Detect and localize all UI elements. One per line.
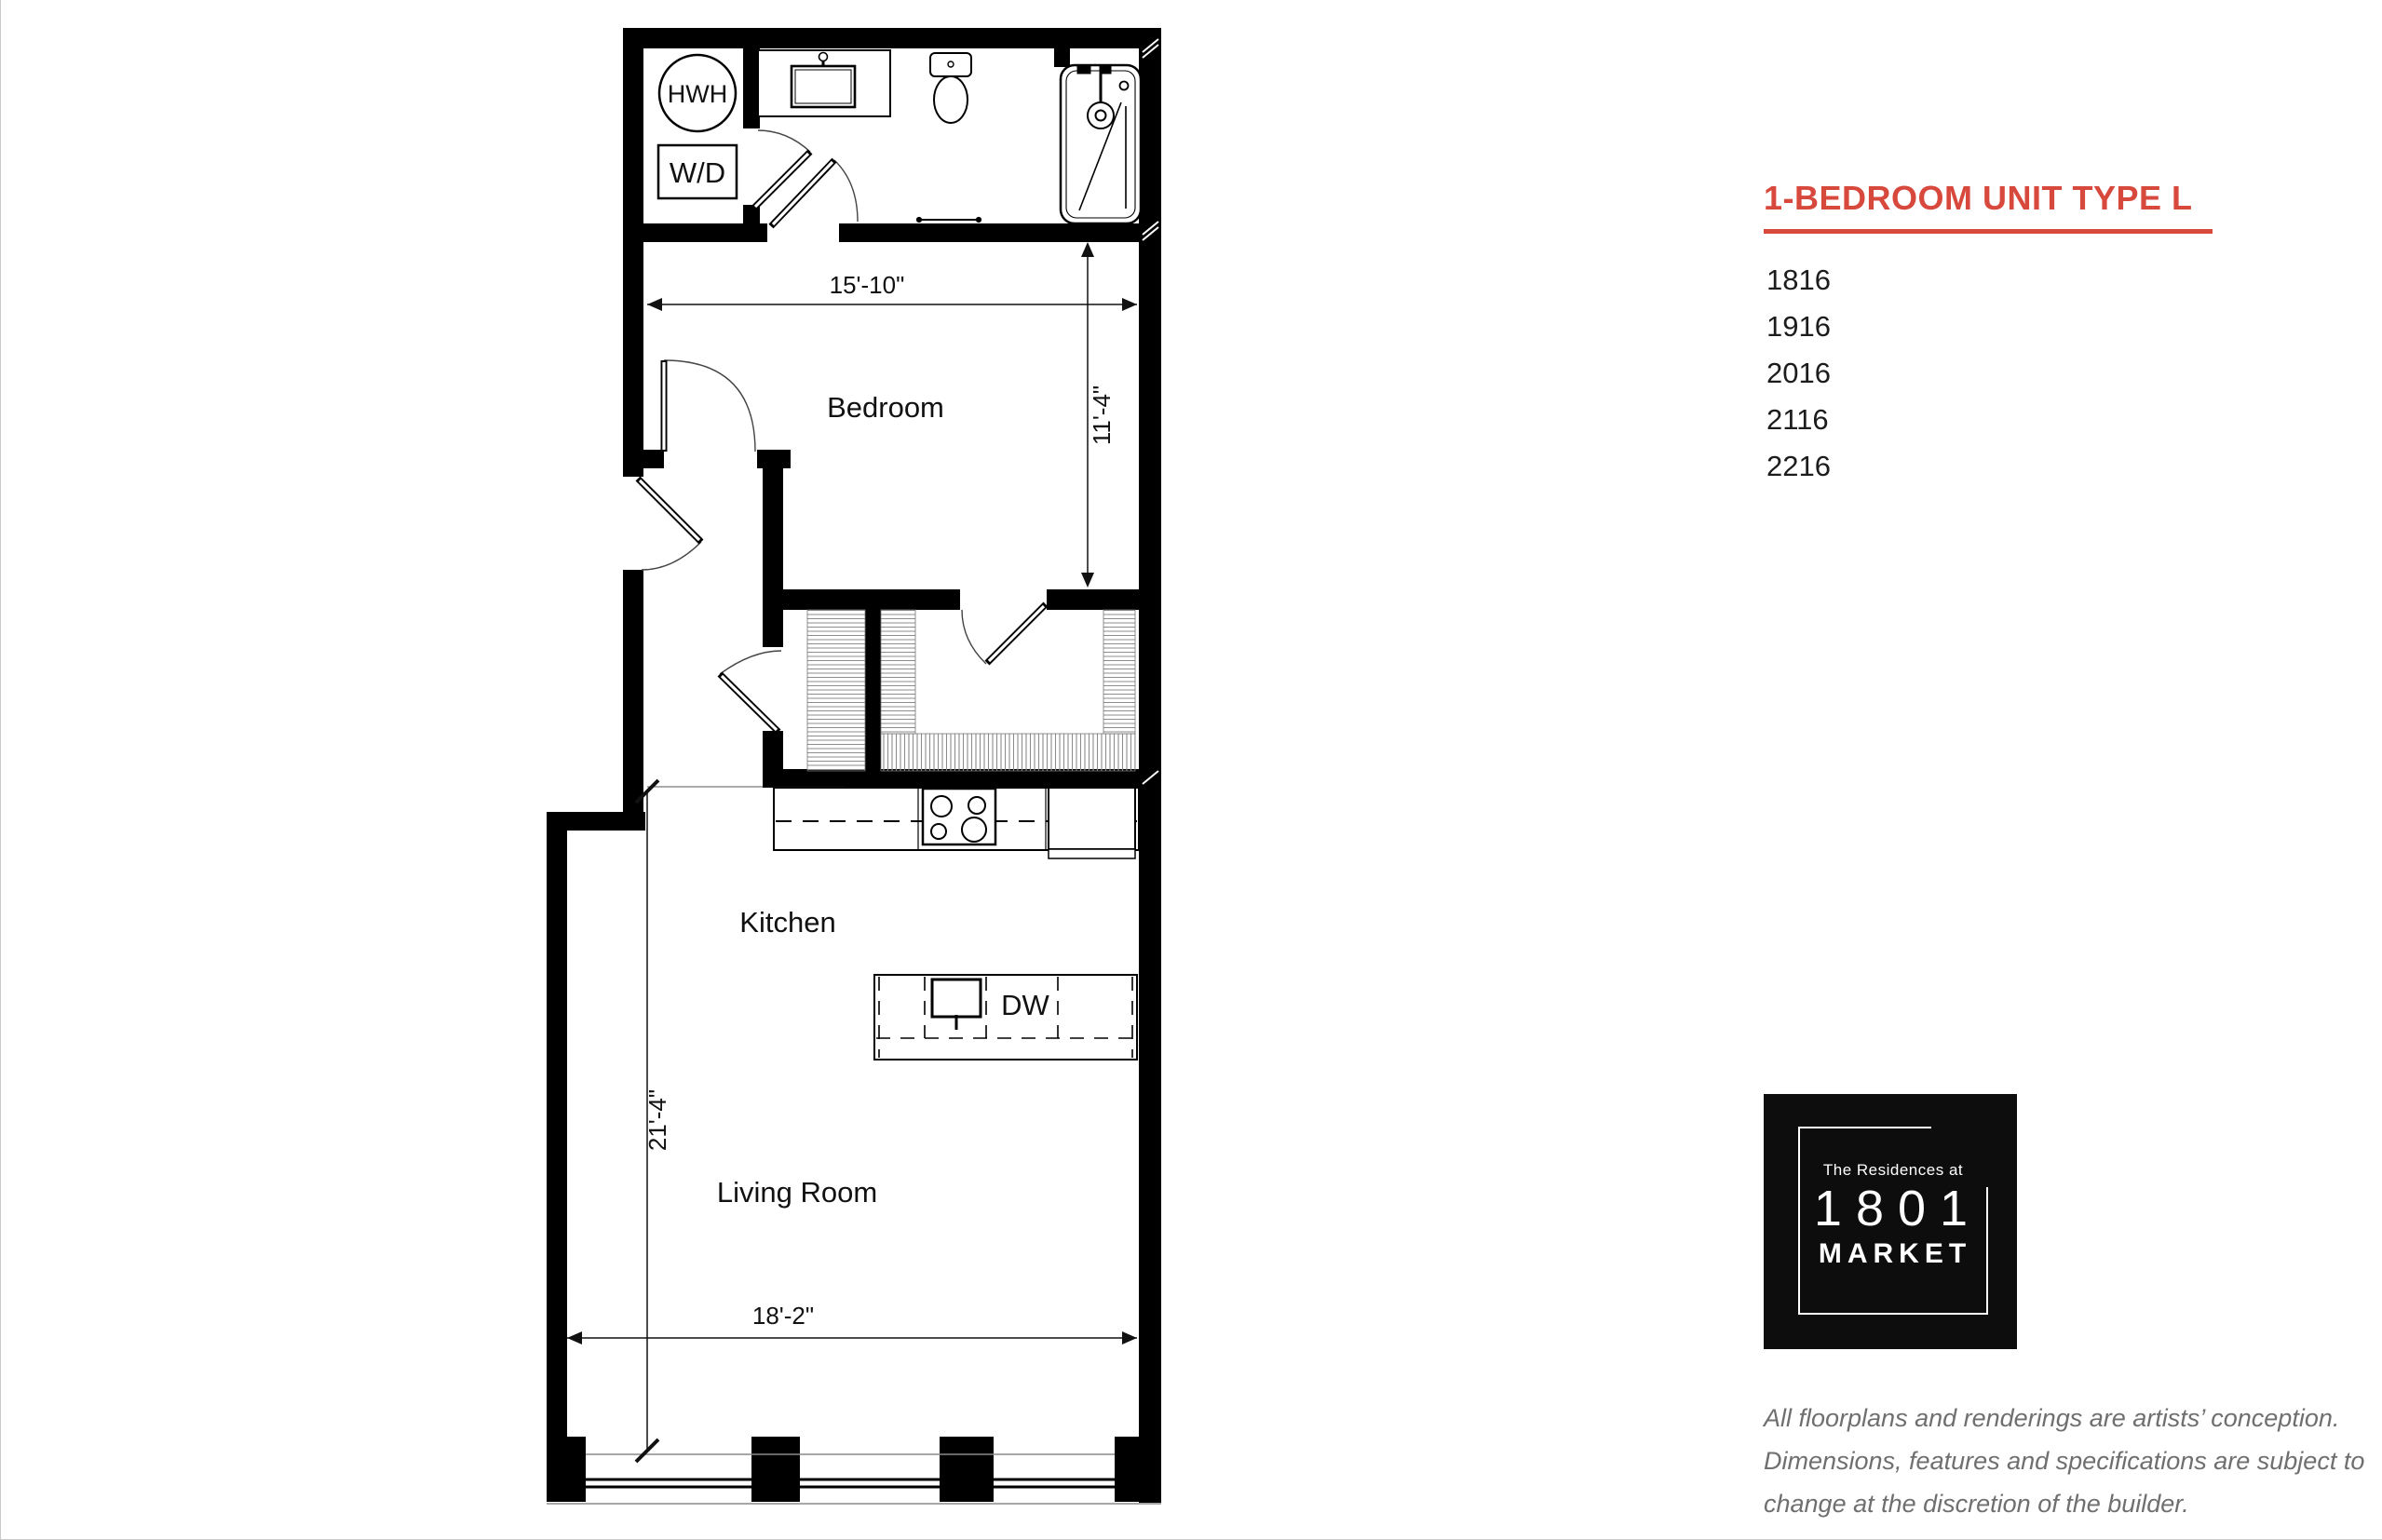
entry-door	[638, 479, 701, 570]
washer-dryer-label: W/D	[670, 156, 725, 189]
dim-living-depth-label: 21'-4"	[643, 1089, 671, 1151]
unit-number: 2016	[1766, 350, 1831, 397]
living-room-label: Living Room	[717, 1176, 877, 1209]
cooktop	[923, 789, 995, 844]
unit-number: 1916	[1766, 304, 1831, 350]
bedroom-door	[664, 360, 755, 452]
brand-logo: The Residences at 1801 MARKET	[1764, 1094, 2017, 1349]
dim-bedroom-depth-label: 11'-4"	[1088, 385, 1116, 445]
unit-number-list: 1816 1916 2016 2116 2216	[1766, 257, 1831, 490]
refrigerator	[1049, 788, 1135, 858]
closet-shelving	[807, 610, 1135, 771]
logo-name: MARKET	[1798, 1238, 1988, 1270]
logo-frame-top	[1798, 1127, 1931, 1128]
logo-number: 1801	[1798, 1180, 1988, 1237]
dim-living-width	[567, 1331, 1137, 1344]
dishwasher-label: DW	[1001, 989, 1049, 1021]
bathroom-fixtures	[658, 50, 1141, 223]
toilet	[930, 53, 971, 123]
dim-bedroom-width-label: 15'-10"	[830, 271, 905, 299]
towel-bar	[916, 217, 981, 222]
dim-bedroom-width	[647, 298, 1137, 311]
laundry-bath-doors	[753, 130, 858, 226]
title-underline	[1764, 229, 2213, 234]
flyer-page: Bedroom Kitchen Living Room HWH W/D DW 1…	[0, 0, 2382, 1540]
bathtub-shower	[1061, 65, 1141, 223]
bedroom-label: Bedroom	[827, 391, 944, 424]
hwh-label: HWH	[668, 80, 727, 108]
unit-number: 1816	[1766, 257, 1831, 304]
vanity-sink	[758, 50, 890, 116]
hall-closet-door	[720, 651, 781, 732]
unit-number: 2116	[1766, 397, 1831, 443]
unit-number: 2216	[1766, 443, 1831, 490]
logo-frame-bottom	[1798, 1313, 1988, 1315]
window-wall	[547, 1454, 1161, 1504]
walkin-closet-door	[962, 604, 1046, 664]
logo-tagline: The Residences at	[1798, 1161, 1988, 1180]
dim-living-width-label: 18'-2"	[752, 1302, 814, 1330]
kitchen-label: Kitchen	[739, 906, 835, 939]
page-title: 1-BEDROOM UNIT TYPE L	[1764, 179, 2193, 218]
disclaimer-text: All floorplans and renderings are artist…	[1764, 1397, 2382, 1525]
